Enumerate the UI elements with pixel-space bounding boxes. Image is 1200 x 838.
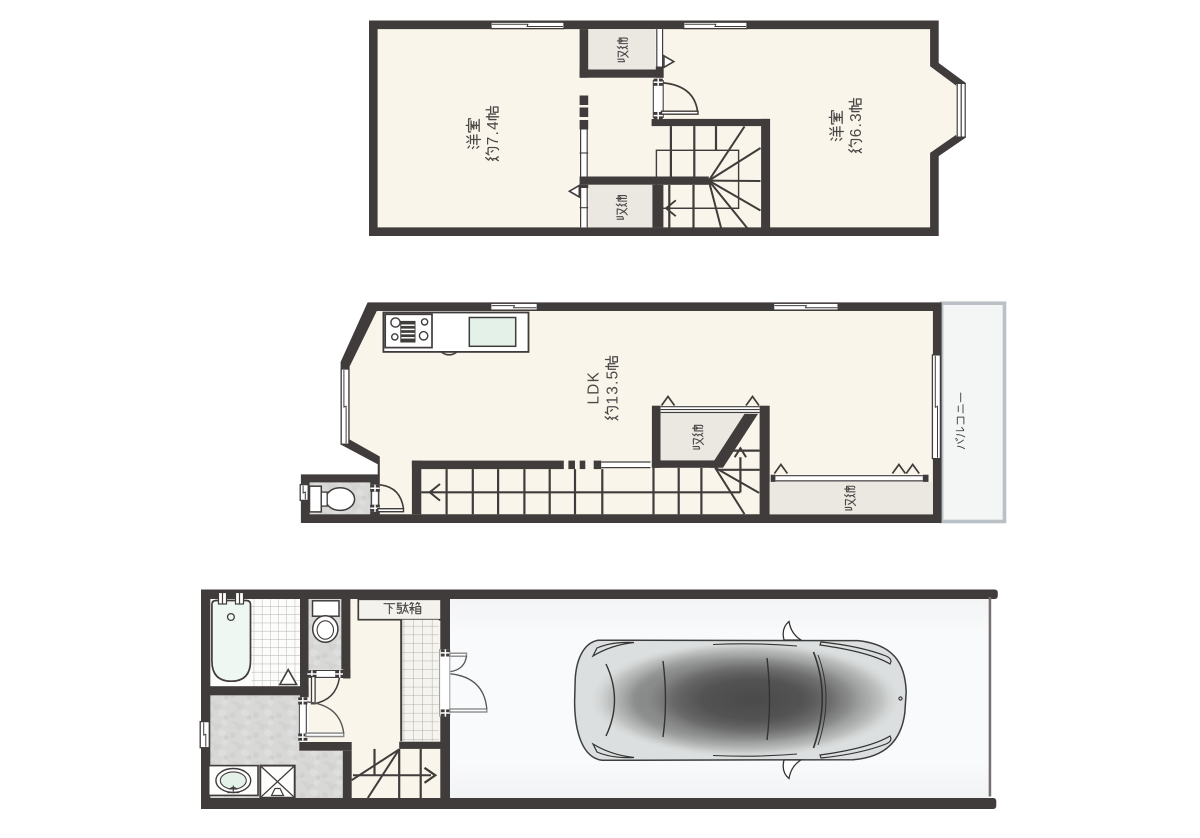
svg-text:7.4: 7.4 [485, 120, 502, 145]
svg-text:LDK: LDK [585, 371, 602, 405]
svg-text:13.5: 13.5 [605, 370, 622, 405]
svg-text:6.3: 6.3 [848, 112, 865, 137]
